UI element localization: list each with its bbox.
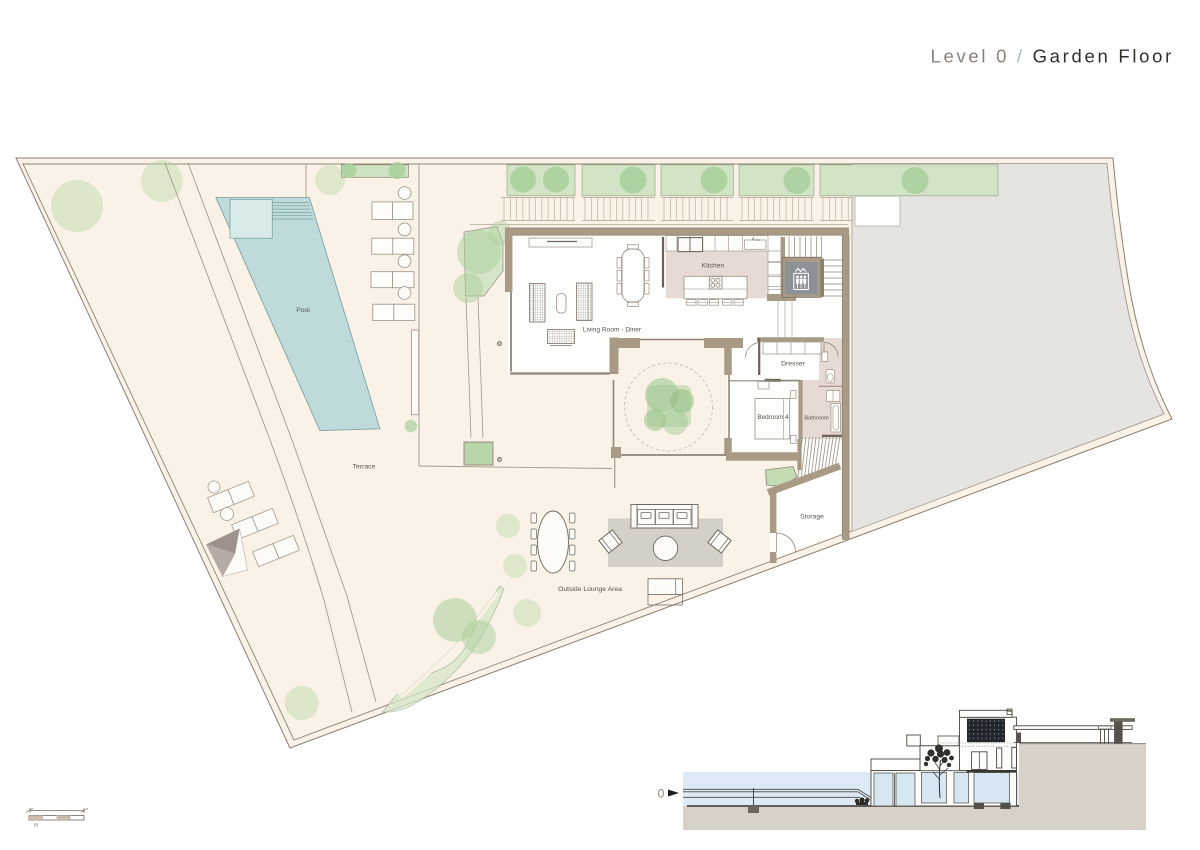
svg-text:Storage: Storage bbox=[800, 514, 824, 521]
svg-text:Pool: Pool bbox=[296, 307, 310, 314]
svg-text:Living Room - Diner: Living Room - Diner bbox=[583, 327, 642, 334]
svg-text:Dresser: Dresser bbox=[781, 361, 806, 368]
svg-text:Terrace: Terrace bbox=[353, 464, 376, 471]
svg-text:Kitchen: Kitchen bbox=[702, 263, 725, 270]
svg-text:Outside Lounge Area: Outside Lounge Area bbox=[558, 586, 622, 593]
svg-text:m: m bbox=[34, 823, 38, 829]
svg-text:Bathroom: Bathroom bbox=[804, 416, 829, 422]
svg-text:Level 0 / Garden Floor: Level 0 / Garden Floor bbox=[931, 46, 1175, 67]
svg-text:Bedroom 4: Bedroom 4 bbox=[757, 414, 789, 421]
svg-text:0: 0 bbox=[658, 787, 665, 801]
